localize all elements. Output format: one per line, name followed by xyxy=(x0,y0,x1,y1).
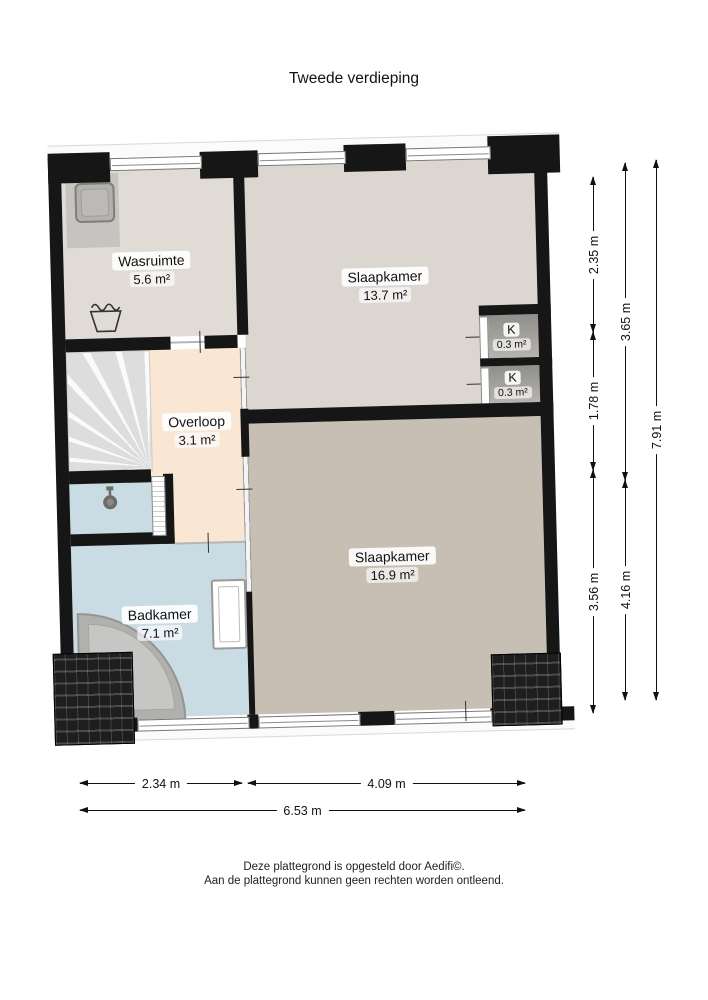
dimension-label: 3.56 m xyxy=(587,567,601,615)
room-area: 0.3 m² xyxy=(493,338,531,351)
room-name: Slaapkamer xyxy=(349,546,436,566)
room-area: 7.1 m² xyxy=(138,625,183,641)
wall-top-corner-right xyxy=(487,134,560,174)
room-name: Overloop xyxy=(162,412,231,432)
dimension-right-3-65: 3.65 m xyxy=(625,163,626,480)
room-label-kast-2: K 0.3 m² xyxy=(493,368,532,399)
dimension-bottom-2-34: 2.34 m xyxy=(80,783,242,784)
room-name: Slaapkamer xyxy=(341,266,428,286)
footer-line-2: Aan de plattegrond kunnen geen rechten w… xyxy=(0,874,708,888)
room-label-slaapkamer-2: Slaapkamer 16.9 m² xyxy=(349,546,437,583)
window-bottom-3 xyxy=(394,710,492,725)
dimension-label: 4.16 m xyxy=(619,566,633,614)
dimension-right-7-91: 7.91 m xyxy=(656,160,657,700)
closet-2-door xyxy=(480,367,490,404)
dimension-bottom-4-09: 4.09 m xyxy=(248,783,525,784)
window-top-3 xyxy=(406,146,491,161)
room-name: K xyxy=(504,370,521,384)
shower-icon xyxy=(96,486,125,515)
wall-wasruimte-south-2 xyxy=(204,335,237,349)
wall-bottom-pier xyxy=(358,711,394,726)
dimension-label: 6.53 m xyxy=(276,804,328,818)
dimension-right-4-16: 4.16 m xyxy=(625,480,626,700)
room-area: 5.6 m² xyxy=(129,271,174,287)
wall-closet-top xyxy=(479,304,551,316)
room-area: 3.1 m² xyxy=(174,432,219,448)
wall-stairs-shower xyxy=(69,469,151,484)
wall-wasruimte-south-1 xyxy=(65,337,170,353)
room-label-wasruimte: Wasruimte 5.6 m² xyxy=(112,251,191,288)
stairs xyxy=(66,350,153,473)
dimension-label: 2.35 m xyxy=(587,230,601,278)
shower-glass-door xyxy=(151,476,167,536)
room-label-overloop: Overloop 3.1 m² xyxy=(162,412,232,449)
dimension-right-2-35: 2.35 m xyxy=(593,177,594,332)
closet-1-door xyxy=(479,316,489,359)
room-label-kast-1: K 0.3 m² xyxy=(492,320,531,351)
room-label-slaapkamer-1: Slaapkamer 13.7 m² xyxy=(341,266,429,303)
laundry-tub-icon xyxy=(86,298,125,337)
dimension-label: 4.09 m xyxy=(360,777,412,791)
room-area: 16.9 m² xyxy=(366,567,418,583)
window-top-2 xyxy=(258,151,346,166)
dimension-right-1-78: 1.78 m xyxy=(593,332,594,470)
room-name: K xyxy=(503,323,520,337)
wall-top-pier-2 xyxy=(343,143,406,172)
dimension-label: 2.34 m xyxy=(135,777,187,791)
dimension-label: 1.78 m xyxy=(587,377,601,425)
room-label-badkamer: Badkamer 7.1 m² xyxy=(122,605,199,642)
room-area: 0.3 m² xyxy=(494,386,532,399)
radiator-icon xyxy=(211,579,248,650)
wall-top-corner-left xyxy=(48,152,111,184)
floor-plan: Wasruimte 5.6 m² Slaapkamer 13.7 m² K 0.… xyxy=(47,128,575,741)
dimension-right-3-56: 3.56 m xyxy=(593,470,594,713)
dimension-label: 3.65 m xyxy=(619,297,633,345)
window-top-1 xyxy=(110,156,202,171)
washing-machine-icon xyxy=(74,182,115,223)
footer-line-1: Deze plattegrond is opgesteld door Aedif… xyxy=(0,860,708,874)
roof-tiles-right xyxy=(491,653,563,727)
wall-top-pier-1 xyxy=(200,150,259,179)
room-name: Badkamer xyxy=(122,605,198,625)
room-name: Wasruimte xyxy=(112,251,191,271)
page-title: Tweede verdieping xyxy=(0,70,708,88)
dimension-bottom-6-53: 6.53 m xyxy=(80,810,525,811)
room-area: 13.7 m² xyxy=(359,287,411,303)
roof-tiles-left xyxy=(53,652,135,746)
dimension-label: 7.91 m xyxy=(650,406,664,454)
footer-disclaimer: Deze plattegrond is opgesteld door Aedif… xyxy=(0,860,708,888)
